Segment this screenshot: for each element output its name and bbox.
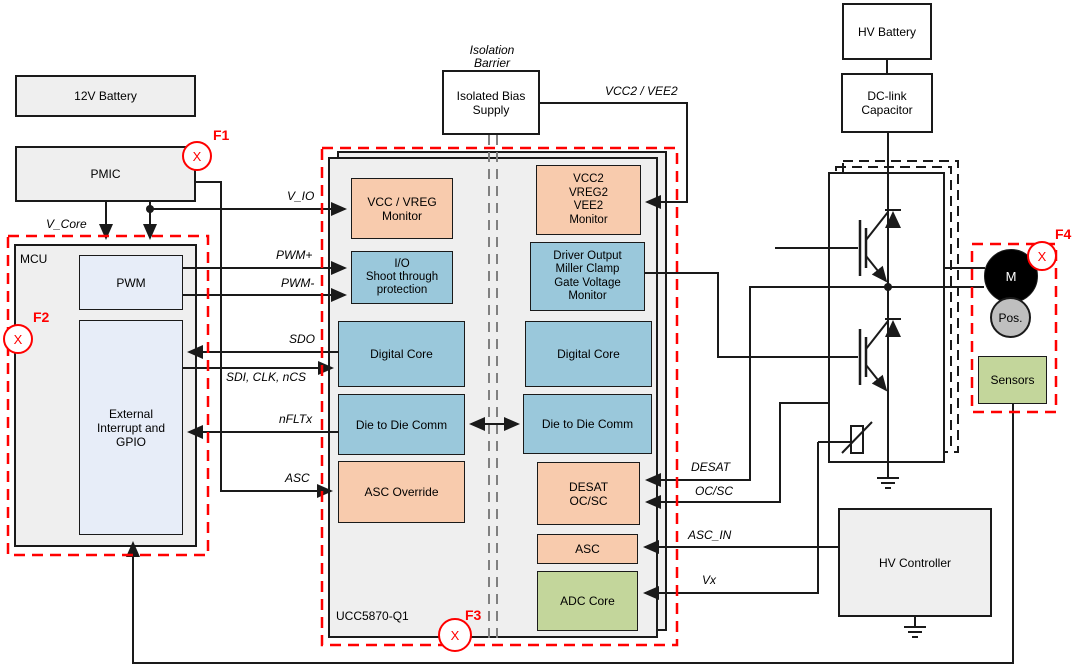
signal-oc-sc: OC/SC xyxy=(695,485,733,498)
ground-inverter xyxy=(877,462,899,488)
gpio-block: External Interrupt and GPIO xyxy=(79,320,183,535)
die-to-die-comm-high-label: Die to Die Comm xyxy=(542,417,633,431)
digital-core-low-label: Digital Core xyxy=(370,347,433,361)
part-number-label: UCC5870-Q1 xyxy=(336,609,409,623)
signal-v-io: V_IO xyxy=(287,190,314,203)
dc-link-capacitor-block: DC-link Capacitor xyxy=(841,73,933,133)
driver-output-monitor-label: Driver Output Miller Clamp Gate Voltage … xyxy=(553,250,621,304)
fault-circle-f4: X xyxy=(1027,241,1057,271)
isolation-barrier-label: Isolation Barrier xyxy=(447,31,537,70)
isolated-bias-supply-block: Isolated Bias Supply xyxy=(442,70,540,135)
position-sensor-label: Pos. xyxy=(998,311,1022,325)
fault-label-f4: F4 xyxy=(1055,227,1071,241)
wire-vx xyxy=(645,442,818,593)
asc-override-block: ASC Override xyxy=(338,461,465,523)
signal-asc-in: ASC_IN xyxy=(688,529,731,542)
signal-desat: DESAT xyxy=(691,461,730,474)
hv-battery-label: HV Battery xyxy=(858,25,916,39)
signal-pwm-minus: PWM- xyxy=(281,277,314,290)
battery-12v-block: 12V Battery xyxy=(15,75,196,117)
signal-vx: Vx xyxy=(702,574,716,587)
hv-controller-label: HV Controller xyxy=(879,556,951,570)
varistor-body xyxy=(851,426,863,453)
pmic-label: PMIC xyxy=(91,167,121,181)
die-to-die-comm-low-block: Die to Die Comm xyxy=(338,394,465,455)
vcc2-monitor-block: VCC2 VREG2 VEE2 Monitor xyxy=(536,165,641,235)
vcc-vreg-monitor-label: VCC / VREG Monitor xyxy=(367,195,436,223)
diode-top-triangle xyxy=(885,211,901,228)
adc-core-label: ADC Core xyxy=(560,594,615,608)
igbt-bottom-emitter xyxy=(866,365,886,390)
fault-circle-f1: X xyxy=(182,141,212,171)
sensors-label: Sensors xyxy=(990,373,1034,387)
diode-bottom-triangle xyxy=(885,320,901,337)
inverter-phase-box-2 xyxy=(836,167,951,446)
asc-label: ASC xyxy=(575,542,600,556)
inverter-phase-box-1 xyxy=(829,173,944,462)
pwm-block: PWM xyxy=(79,255,183,310)
fault-label-f3: F3 xyxy=(465,608,481,622)
die-to-die-comm-high-block: Die to Die Comm xyxy=(523,394,652,454)
fault-x-f1: X xyxy=(193,149,202,164)
signal-sdo: SDO xyxy=(289,333,315,346)
position-sensor: Pos. xyxy=(990,297,1031,338)
digital-core-low-block: Digital Core xyxy=(338,321,465,387)
fault-label-f2: F2 xyxy=(33,310,49,324)
igbt-bottom-collector xyxy=(866,321,888,349)
asc-override-label: ASC Override xyxy=(364,485,438,499)
wire-oc-sc xyxy=(647,403,830,502)
signal-v-core: V_Core xyxy=(46,218,87,231)
die-to-die-comm-low-label: Die to Die Comm xyxy=(356,418,447,432)
sensors-block: Sensors xyxy=(978,356,1047,404)
signal-spi: SDI, CLK, nCS xyxy=(226,371,306,384)
wire-desat xyxy=(647,287,984,480)
desat-oc-sc-label: DESAT OC/SC xyxy=(569,480,608,508)
junction-vcore-vio xyxy=(146,205,154,213)
wire-driver-output xyxy=(645,273,858,357)
igbt-top-emitter xyxy=(866,256,886,281)
isolated-bias-supply-label: Isolated Bias Supply xyxy=(457,89,526,117)
motor-label: M xyxy=(1006,269,1017,284)
igbt-top-collector xyxy=(866,212,888,240)
fault-circle-f2: X xyxy=(3,324,33,354)
fault-x-f4: X xyxy=(1038,249,1047,264)
fault-circle-f3: X xyxy=(438,618,472,652)
varistor-diagonal xyxy=(842,422,872,453)
driver-output-monitor-block: Driver Output Miller Clamp Gate Voltage … xyxy=(530,242,645,311)
pwm-label: PWM xyxy=(116,276,145,290)
fault-x-f2: X xyxy=(14,332,23,347)
signal-asc: ASC xyxy=(285,472,310,485)
signal-pwm-plus: PWM+ xyxy=(276,249,312,262)
ground-hv-controller xyxy=(904,617,926,637)
mcu-label: MCU xyxy=(20,252,47,266)
asc-block: ASC xyxy=(537,534,638,564)
fault-label-f1: F1 xyxy=(213,128,229,142)
hv-controller-block: HV Controller xyxy=(838,508,992,617)
pmic-block: PMIC xyxy=(15,146,196,202)
digital-core-high-block: Digital Core xyxy=(525,321,652,387)
io-shoot-through-label: I/O Shoot through protection xyxy=(366,258,438,297)
hv-battery-block: HV Battery xyxy=(842,3,932,60)
dc-link-capacitor-label: DC-link Capacitor xyxy=(861,89,912,117)
signal-vcc2-vee2: VCC2 / VEE2 xyxy=(605,85,678,98)
battery-12v-label: 12V Battery xyxy=(74,89,137,103)
junction-phase-midpoint xyxy=(884,283,892,291)
block-diagram: 12V Battery PMIC Isolated Bias Supply HV… xyxy=(0,0,1082,666)
desat-oc-sc-block: DESAT OC/SC xyxy=(537,462,640,525)
adc-core-block: ADC Core xyxy=(537,571,638,631)
io-shoot-through-block: I/O Shoot through protection xyxy=(351,251,453,304)
fault-x-f3: X xyxy=(451,628,460,643)
inverter-phase-box-3 xyxy=(843,161,958,452)
gpio-label: External Interrupt and GPIO xyxy=(97,407,165,449)
vcc-vreg-monitor-block: VCC / VREG Monitor xyxy=(351,178,453,239)
vcc2-monitor-label: VCC2 VREG2 VEE2 Monitor xyxy=(569,173,608,227)
signal-nfltx: nFLTx xyxy=(279,413,312,426)
isolation-barrier-text: Isolation Barrier xyxy=(470,43,515,70)
digital-core-high-label: Digital Core xyxy=(557,347,620,361)
